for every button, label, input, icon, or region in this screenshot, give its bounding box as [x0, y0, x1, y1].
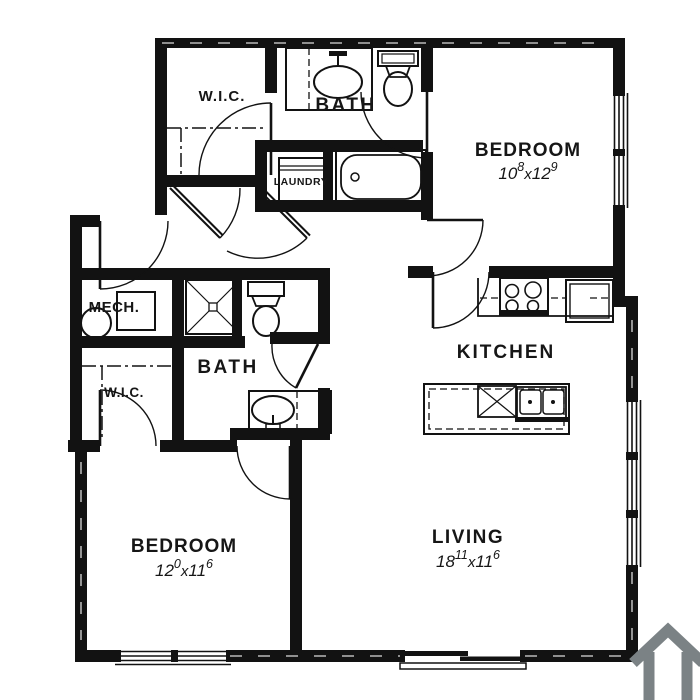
floor-plan: W.I.C. BATH BEDROOM 108x129 LAUNDRY MECH…: [0, 0, 700, 700]
label-kitchen: KITCHEN: [457, 342, 555, 363]
label-bath-top: BATH: [315, 95, 376, 116]
label-bedroom-top: BEDROOM: [475, 140, 581, 161]
faucet-icon: [329, 51, 347, 56]
label-wic-top: W.I.C.: [199, 88, 246, 105]
label-mech: MECH.: [89, 299, 140, 316]
label-bedroom-bottom: BEDROOM: [131, 536, 237, 557]
label-bath-mid: BATH: [197, 357, 258, 378]
label-wic-left: W.I.C.: [104, 385, 144, 400]
label-living: LIVING: [432, 527, 504, 548]
label-laundry: LAUNDRY: [274, 176, 328, 188]
